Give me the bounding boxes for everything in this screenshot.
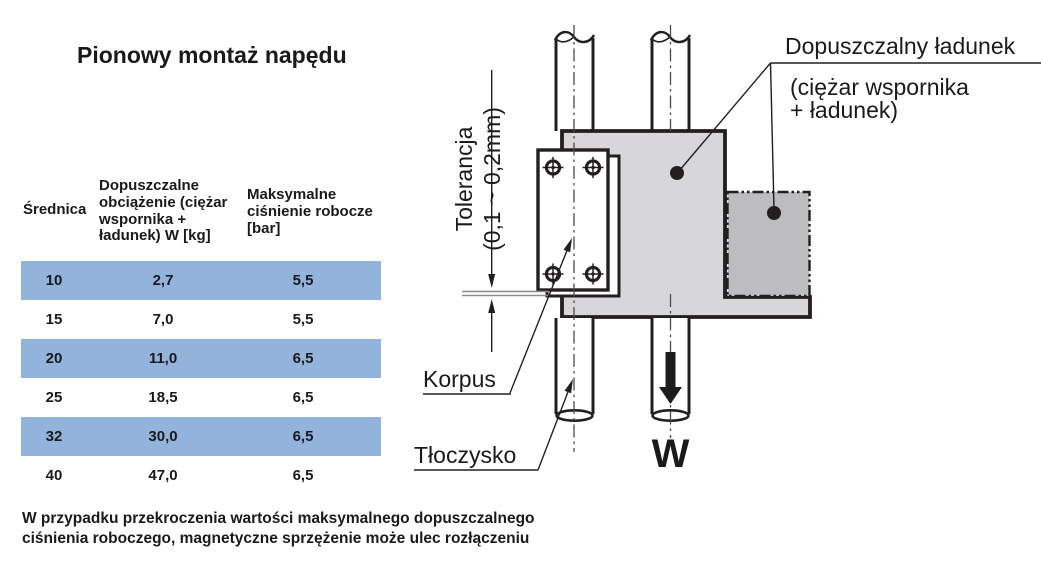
cell-load: 2,7 (87, 272, 239, 289)
table-row: 32 30,0 6,5 (21, 417, 381, 456)
table-row: 25 18,5 6,5 (21, 378, 381, 417)
label-weight: W (652, 432, 690, 476)
label-korpus: Korpus (423, 366, 496, 392)
table-row: 40 47,0 6,5 (21, 456, 381, 495)
page-title: Pionowy montaż napędu (77, 42, 347, 69)
cell-load: 7,0 (87, 311, 239, 328)
cell-pressure: 6,5 (239, 428, 381, 445)
cell-pressure: 6,5 (239, 389, 381, 406)
cell-pressure: 5,5 (239, 311, 381, 328)
table-header-row: Średnica Dopuszczalne obciążenie (ciężar… (21, 176, 381, 245)
table-row: 15 7,0 5,5 (21, 300, 381, 339)
mounting-diagram: Dopuszczalny ładunek (ciężar wspornika +… (400, 0, 1041, 577)
table-row: 20 11,0 6,5 (21, 339, 381, 378)
cell-diameter: 20 (21, 350, 87, 367)
cell-diameter: 40 (21, 467, 87, 484)
label-load: Dopuszczalny ładunek (785, 33, 1016, 59)
cell-pressure: 6,5 (239, 350, 381, 367)
cell-diameter: 25 (21, 389, 87, 406)
label-tolerance-2: (0,1 ~ 0,2mm) (479, 107, 505, 251)
datasheet-page: Pionowy montaż napędu Średnica Dopuszcza… (0, 0, 1041, 577)
korpus-plate (538, 150, 619, 296)
header-diameter: Średnica (21, 202, 87, 219)
label-tloczysko: Tłoczysko (414, 442, 516, 468)
header-pressure: Maksymalne ciśnienie robocze [bar] (239, 176, 381, 245)
label-load-sub2: + ładunek) (790, 97, 898, 123)
spec-table: 10 2,7 5,5 15 7,0 5,5 20 11,0 6,5 25 18,… (21, 261, 381, 495)
cell-pressure: 6,5 (239, 467, 381, 484)
load-block (728, 192, 810, 296)
header-load: Dopuszczalne obciążenie (ciężar wspornik… (87, 176, 239, 245)
cell-diameter: 32 (21, 428, 87, 445)
cell-load: 18,5 (87, 389, 239, 406)
table-row: 10 2,7 5,5 (21, 261, 381, 300)
cell-load: 30,0 (87, 428, 239, 445)
label-tolerance-1: Tolerancja (451, 126, 477, 231)
cell-diameter: 10 (21, 272, 87, 289)
cell-load: 11,0 (87, 350, 239, 367)
cell-diameter: 15 (21, 311, 87, 328)
cell-pressure: 5,5 (239, 272, 381, 289)
cell-load: 47,0 (87, 467, 239, 484)
